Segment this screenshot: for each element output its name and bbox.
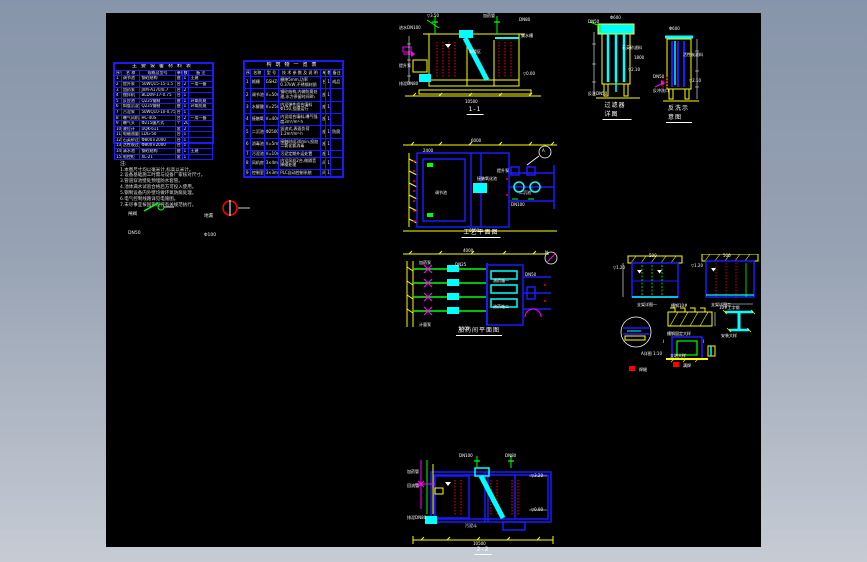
table-row: 3水解酸化池V=25m³内设弹性组合填料Φ150,挂膜运行座1 [245, 101, 343, 113]
table-cell: 接触氧化池 [250, 113, 264, 125]
annotation: ▽0.00 [523, 72, 535, 76]
annotation: 6000 [471, 139, 481, 143]
annotation: 槽钢10# [671, 304, 687, 308]
annotation: 安装大样 [721, 334, 737, 338]
table-row: 5二沉池Φ2500竖流式,表面负荷1.2m³/m²·h座1防腐 [245, 126, 343, 138]
section-1-1-label: 1-1 [467, 106, 484, 115]
table-cell: 斜管沉淀池 [121, 104, 140, 110]
table-row: 2提升泵50WQ15-15-1.5台2一用一备 [115, 81, 213, 87]
table-cell: BLD09-17-0.75 [140, 93, 175, 99]
table-header-cell: 技 术 参 数 及 说 明 [279, 70, 321, 77]
table-cell: V=5m³ [264, 138, 279, 150]
annotation: 焊缝 [639, 368, 647, 372]
annotation: 500 [723, 254, 731, 258]
table-cell: 套 [175, 154, 182, 160]
valve-icon [142, 199, 176, 215]
table-cell: 内设风机2台,做隔音降噪处理 [279, 157, 321, 169]
table-row: 1格栅GSHZ-500栅隙5mm,功率0.37kW,不锈钢材质台1成品 [245, 76, 343, 88]
table-cell: 成品 [331, 76, 343, 88]
table-cell [331, 170, 343, 177]
annotation: 石英砂滤料 [622, 46, 642, 50]
table-cell: V=10m³ [264, 151, 279, 158]
annotation: ▽2.10 [628, 68, 640, 72]
annotation: 支墩大样 [670, 354, 686, 358]
section-2-2-annotations: DN100DN80加药管回流管▽3.20▽0.00污泥斗10500排泥DN80 [407, 454, 559, 554]
annotation: A详图 1:10 [641, 352, 662, 356]
table-cell: 消毒池 [250, 138, 264, 150]
dosing-plan-label: 加药间平面图 [456, 325, 502, 336]
table-cell [331, 101, 343, 113]
annotation: 提升泵 [497, 169, 509, 173]
filter-a-label: 过滤器详图 [603, 100, 632, 120]
table-cell: 20 [182, 121, 189, 127]
plan-view-drawing: 60002400调节池接触氧化池提升泵二沉池ADN1006000 工艺平面图 [399, 139, 564, 235]
table-cell: 活性炭过滤器 [121, 143, 140, 149]
table-cell: 14 [115, 149, 122, 155]
annotation: 10500 [465, 100, 478, 104]
table-header-cell: 备注 [331, 70, 343, 77]
table-cell: 10 [115, 126, 122, 132]
annotation: 4000 [463, 249, 473, 253]
table-cell: 13 [115, 143, 122, 149]
drawing-canvas[interactable]: 主要设备材料表序号名 称规格及型号单位数量备 注1调节池钢砼结构座1土建2提升泵… [106, 13, 761, 547]
table-cell: 石英砂过滤器 [121, 137, 140, 143]
annotation: ▽1.20 [613, 266, 625, 270]
table-cell: 二沉池 [250, 126, 264, 138]
table-header-cell: 数量 [182, 70, 189, 76]
table-cell: 电磁流量计 [121, 132, 140, 138]
annotation: DN50 [588, 20, 599, 24]
table-cell [331, 151, 343, 158]
table-cell: 控制室 [250, 170, 264, 177]
annotation: 1800 [634, 56, 644, 60]
table-cell: 11 [115, 132, 122, 138]
table-cell: 12 [115, 137, 122, 143]
table-cell: 50WQ15-15-1.5 [140, 81, 175, 87]
table-cell: 调节池 [250, 89, 264, 101]
annotation: ▽1.20 [691, 264, 703, 268]
annotation: 2400 [423, 149, 433, 153]
annotation: 调节池 [435, 191, 447, 195]
table-header-cell: 序号 [115, 70, 122, 76]
annotation: Ⅰ [663, 340, 664, 344]
table-cell: 15 [115, 154, 122, 160]
details-cluster-drawing: 500支架详图一500支架详图二槽钢10#槽钢固定大样A详图 1:10支墩大样1… [611, 254, 764, 378]
legend: 闸阀 DN50 地漏 Φ100 [126, 199, 256, 229]
table-cell [189, 154, 213, 160]
annotation: DN25 [455, 263, 466, 267]
table-cell: 50WQ10-10-0.75 [140, 109, 175, 115]
annotation: N [545, 251, 548, 255]
annotation: ▽3.20 [531, 474, 543, 478]
table-cell: 水解酸化池 [250, 101, 264, 113]
annotation: 集水槽 [521, 34, 533, 38]
table-title: 主要设备材料表 [115, 64, 213, 71]
section-1-1-drawing: 进水DN100▽3.50加药管DN80斜管区集水槽▽0.00提升泵排泥DN801… [399, 14, 551, 118]
table-row: 4接触氧化池V=40m³内设组合填料,曝气强度3m³/m²·h座1 [245, 113, 343, 125]
annotation: 溶药箱一 [493, 279, 509, 283]
table-cell: 电控柜 [121, 154, 140, 160]
table-cell: Φ2500 [264, 126, 279, 138]
annotation: 污泥斗 [465, 524, 477, 528]
table-cell [331, 157, 343, 169]
filter-b-drawing: Φ600活性炭滤料DN50反冲洗口▽2.10 反洗示意图 [653, 27, 705, 111]
annotation: 活性炭滤料 [683, 53, 703, 57]
annotation: 斜管区 [469, 50, 481, 54]
table-row: 6消毒池V=5m³接触时间30min,投加二氧化氯消毒座1 [245, 138, 343, 150]
equipment-table: 主要设备材料表序号名 称规格及型号单位数量备 注1调节池钢砼结构座1土建2提升泵… [113, 62, 214, 144]
annotation: A [542, 149, 545, 153]
table-cell: 1 [182, 154, 189, 160]
annotation: Ⅰ [703, 340, 704, 344]
filter-a-drawing: DN50Φ600石英砂滤料▽2.10反洗DN501800 过滤器详图 [588, 16, 646, 108]
annotation: DN80 [505, 454, 516, 458]
annotation: 提升泵 [399, 64, 411, 68]
table-header-cell: 名称 [250, 70, 264, 77]
annotation: 加药管 [483, 14, 495, 18]
table-cell: V=25m³ [264, 101, 279, 113]
table-header-cell: 单位 [175, 70, 182, 76]
table-cell: 竖流式,表面负荷1.2m³/m²·h [279, 126, 321, 138]
table-cell: GSHZ-500 [264, 76, 279, 88]
annotation: ▽2.10 [689, 79, 701, 83]
annotation: DN50 [525, 273, 536, 277]
table-cell: XL-21 [140, 154, 175, 160]
annotation: 二沉池 [519, 191, 531, 195]
annotation: 支架详图一 [637, 303, 657, 307]
annotation: DN80 [519, 18, 530, 22]
annotation: 加药泵 [419, 261, 431, 265]
table-row: 2调节池V=50m³钢砼结构,内做防腐处理,水力停留时间8h座1 [245, 89, 343, 101]
table-cell: 栅隙5mm,功率0.37kW,不锈钢材质 [279, 76, 321, 88]
table-cell: 格栅 [250, 76, 264, 88]
legend-item-valve: 闸阀 DN50 [128, 199, 183, 238]
table-cell: 内设组合填料,曝气强度3m³/m²·h [279, 113, 321, 125]
table-header-cell: 型 号 [264, 70, 279, 77]
table-cell: V=40m³ [264, 113, 279, 125]
annotation: 满焊 [683, 364, 691, 368]
table-row: 15电控柜XL-21套1 [115, 154, 213, 160]
table-title: 构筑物一览表 [245, 62, 343, 70]
dosing-plan-annotations: 4000加药泵计量泵DN25溶药箱一溶药箱二DN50N2000 [399, 249, 564, 333]
annotation: 加药管 [407, 470, 419, 474]
annotation: DN50 [653, 75, 664, 79]
annotation: ▽3.50 [427, 14, 439, 18]
table-cell: 防腐 [331, 126, 343, 138]
section-2-2-label: 2-2 [475, 546, 492, 555]
table-cell: V=50m³ [264, 89, 279, 101]
filter-b-label: 反洗示意图 [666, 103, 692, 123]
section-2-2-drawing: DN100DN80加药管回流管▽3.20▽0.00污泥斗10500排泥DN80 … [407, 454, 559, 554]
section-1-1-annotations: 进水DN100▽3.50加药管DN80斜管区集水槽▽0.00提升泵排泥DN801… [399, 14, 551, 118]
annotation: DN100 [511, 203, 525, 207]
annotation: 回流管 [407, 484, 419, 488]
table-cell: 内设弹性组合填料Φ150,挂膜运行 [279, 101, 321, 113]
table-cell: 钢砼结构,内做防腐处理,水力停留时间8h [279, 89, 321, 101]
table-cell: 接触时间30min,投加二氧化氯消毒 [279, 138, 321, 150]
annotation: 进水DN100 [399, 26, 421, 30]
dosing-plan-drawing: 4000加药泵计量泵DN25溶药箱一溶药箱二DN50N2000 加药间平面图 [399, 249, 564, 333]
legend-valve-bottom-label: DN50 [128, 231, 141, 236]
filter-a-annotations: DN50Φ600石英砂滤料▽2.10反洗DN501800 [588, 16, 646, 108]
table-cell: 3×3m [264, 170, 279, 177]
annotation: Φ600 [669, 27, 680, 31]
annotation: 计量泵 [419, 323, 431, 327]
table-cell [331, 89, 343, 101]
annotation: Φ600 [610, 16, 621, 20]
legend-item-drain: 地漏 Φ100 [204, 199, 259, 240]
annotation: 10#工字钢 [719, 306, 739, 310]
legend-drain-bottom-label: Φ100 [204, 233, 216, 238]
structures-table: 构筑物一览表序号名称型 号技 术 参 数 及 说 明单位数量备注1格栅GSHZ-… [243, 60, 344, 178]
annotation: 接触氧化池 [477, 177, 497, 181]
plan-label: 工艺平面图 [461, 227, 500, 238]
table-cell [331, 138, 343, 150]
filter-b-annotations: Φ600活性炭滤料DN50反冲洗口▽2.10 [653, 27, 705, 111]
annotation: 排泥DN80 [399, 82, 418, 86]
plan-annotations: 60002400调节池接触氧化池提升泵二沉池ADN1006000 [399, 139, 564, 235]
annotation: 溶药箱二 [493, 305, 509, 309]
table-cell: 风机房 [250, 157, 264, 169]
table-cell: PLC自动控制系统 [279, 170, 321, 177]
table-cell [331, 113, 343, 125]
annotation: 500 [649, 254, 657, 258]
table-row: 9控制室3×3mPLC自动控制系统间1 [245, 170, 343, 177]
annotation: DN100 [459, 454, 473, 458]
annotation: 排泥DN80 [407, 516, 426, 520]
annotation: 反洗DN50 [588, 92, 607, 96]
floor-drain-icon [218, 199, 252, 217]
table-cell: 污泥定期外运处置 [279, 151, 321, 158]
table-row: 8风机房3×4m内设风机2台,做隔音降噪处理间1 [245, 157, 343, 169]
annotation: 槽钢固定大样 [667, 332, 691, 336]
table-cell: 污泥池 [250, 151, 264, 158]
table-cell: 曝气风机 [121, 115, 140, 121]
legend-valve-top-label: 闸阀 [128, 212, 137, 217]
table-row: 7污泥池V=10m³污泥定期外运处置座1 [245, 151, 343, 158]
legend-drain-top-label: 地漏 [204, 214, 213, 219]
annotation: 反冲洗口 [653, 89, 669, 93]
details-annotations: 500支架详图一500支架详图二槽钢10#槽钢固定大样A详图 1:10支墩大样1… [611, 254, 764, 378]
table-cell: 3×4m [264, 157, 279, 169]
annotation: ▽0.00 [531, 508, 543, 512]
